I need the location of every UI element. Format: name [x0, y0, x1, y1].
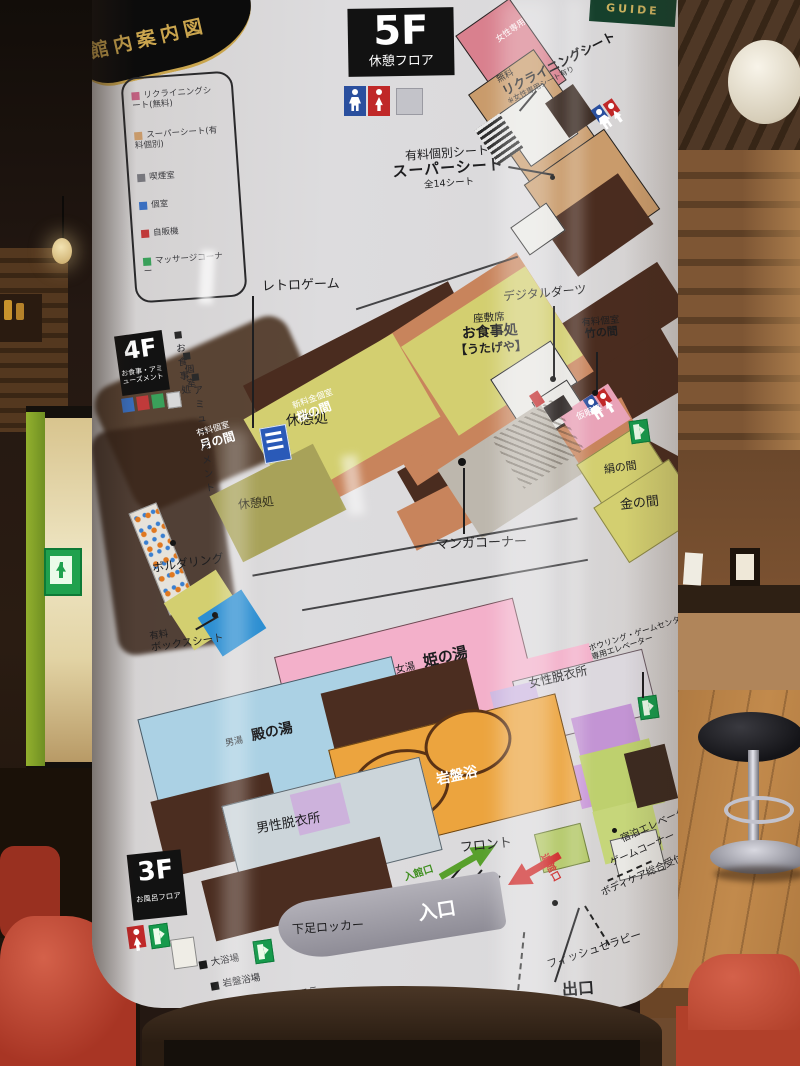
callout-dot: [552, 900, 558, 906]
legend-label: 自販機: [153, 226, 179, 238]
legend-item: 自販機: [141, 223, 228, 239]
f4-retro-game-label: レトロゲーム: [262, 277, 340, 295]
legend-swatch: [131, 91, 140, 100]
callout-dot: [592, 390, 598, 396]
f4-take-callout: [596, 352, 598, 392]
wall-light-right: [742, 150, 800, 450]
legend-swatch: [139, 201, 148, 210]
floor4-tag-box: 4F お食事・アミューズメント: [114, 330, 170, 396]
legend-item: 喫煙室: [137, 167, 224, 183]
men-restroom-icon: [344, 86, 366, 116]
floor4-caption: お食事・アミューズメント: [121, 364, 167, 386]
f3-women-icon: [127, 925, 147, 949]
stool-footring: [724, 796, 794, 824]
glare-streak: [566, 0, 584, 1010]
bottle: [16, 303, 24, 320]
legend-swatch: [174, 331, 182, 339]
bottle: [4, 300, 12, 320]
elevator-glyph: [266, 438, 282, 444]
floor3-tag-box: 3F お風呂フロア: [127, 849, 188, 920]
legend-swatch: [210, 981, 219, 990]
f3-exit-sign-icon2: [252, 939, 274, 964]
women-restroom-icon: [368, 86, 390, 116]
floor3-tag: 3F: [127, 853, 184, 889]
legend-swatch: [141, 229, 150, 238]
kanban-banner-text: 館内案内図: [88, 15, 210, 64]
glare-streak: [222, 430, 248, 1010]
legend-label: 喫煙室: [149, 171, 175, 183]
callout-dot: [458, 458, 466, 466]
shelf-frame-inner: [736, 554, 754, 580]
floor5-tag-box: 5F 休憩フロア: [347, 7, 454, 77]
legend-label: 個室: [151, 199, 169, 210]
legend-swatch: [192, 373, 200, 381]
f3-exit-sign-icon: [637, 695, 659, 720]
legend-label: リクライニングシート(無料): [132, 86, 212, 112]
pendant-light: [52, 238, 72, 264]
legend-item: リクライニングシート(無料): [131, 85, 218, 111]
floor5-tag: 5F: [347, 7, 454, 56]
glare-streak: [500, 0, 552, 1010]
stool-shadow: [714, 866, 800, 882]
f3-fish-callout: [584, 904, 612, 945]
sofa-right-cushion: [688, 954, 800, 1030]
f3-exit-icon-legend: [148, 923, 170, 949]
f4-retro-callout: [252, 296, 254, 428]
legend-swatch: [134, 131, 143, 140]
elevator-glyph: [267, 445, 283, 451]
f4-icon-green: [151, 393, 165, 409]
f3-white-card-icon: [170, 936, 198, 969]
guide-banner-text: GUIDE: [589, 1, 676, 20]
f4-icon-red: [136, 395, 150, 411]
callout-dot: [212, 612, 218, 618]
f4-exit-sign-icon: [628, 419, 650, 444]
glare-spot: [199, 250, 216, 305]
sphere-lamp: [728, 40, 800, 124]
pillar-base-dark: [164, 1040, 640, 1066]
elevator-glyph: [265, 431, 281, 437]
legend-item: マッサージコーナー: [143, 251, 230, 277]
pendant-cord: [62, 196, 64, 240]
callout-dot: [170, 540, 176, 546]
legend-swatch: [137, 173, 146, 182]
smoking-area-icon: [396, 88, 423, 115]
legend-swatch: [183, 352, 191, 360]
legend-item: 個室: [139, 195, 226, 211]
legend-swatch: [143, 257, 152, 266]
legend-item: スーパーシート(有料個別): [134, 125, 221, 151]
f5-superseat-label: 有料個別シート スーパーシート 全14シート: [377, 141, 520, 194]
green-door-panel: [26, 412, 45, 766]
legend-swatch: [198, 960, 207, 969]
floor5-caption: 休憩フロア: [348, 53, 454, 70]
f4-darts-callout: [553, 306, 555, 378]
floor3-caption: お風呂フロア: [131, 891, 186, 905]
f4-icon-blue: [121, 397, 135, 413]
f4-manga-callout: [463, 468, 465, 534]
f3-bowling-ev-callout: [642, 672, 644, 698]
f4-icon-gray: [166, 391, 182, 409]
floor5-legend-box: リクライニングシート(無料) スーパーシート(有料個別) 喫煙室 個室 自販機 …: [120, 70, 247, 303]
shelf-card: [683, 552, 703, 585]
photo-of-floor-guide-pillar: 館内案内図 GUIDE 5F 休憩フロア リクライニングシート(無料) スーパー…: [0, 0, 800, 1066]
floor4-tag: 4F: [114, 332, 165, 367]
callout-dot: [612, 828, 617, 833]
legend-label: スーパーシート(有料個別): [135, 126, 218, 152]
f3-fish-therapy-label: フィッシュセラピー: [545, 929, 643, 972]
